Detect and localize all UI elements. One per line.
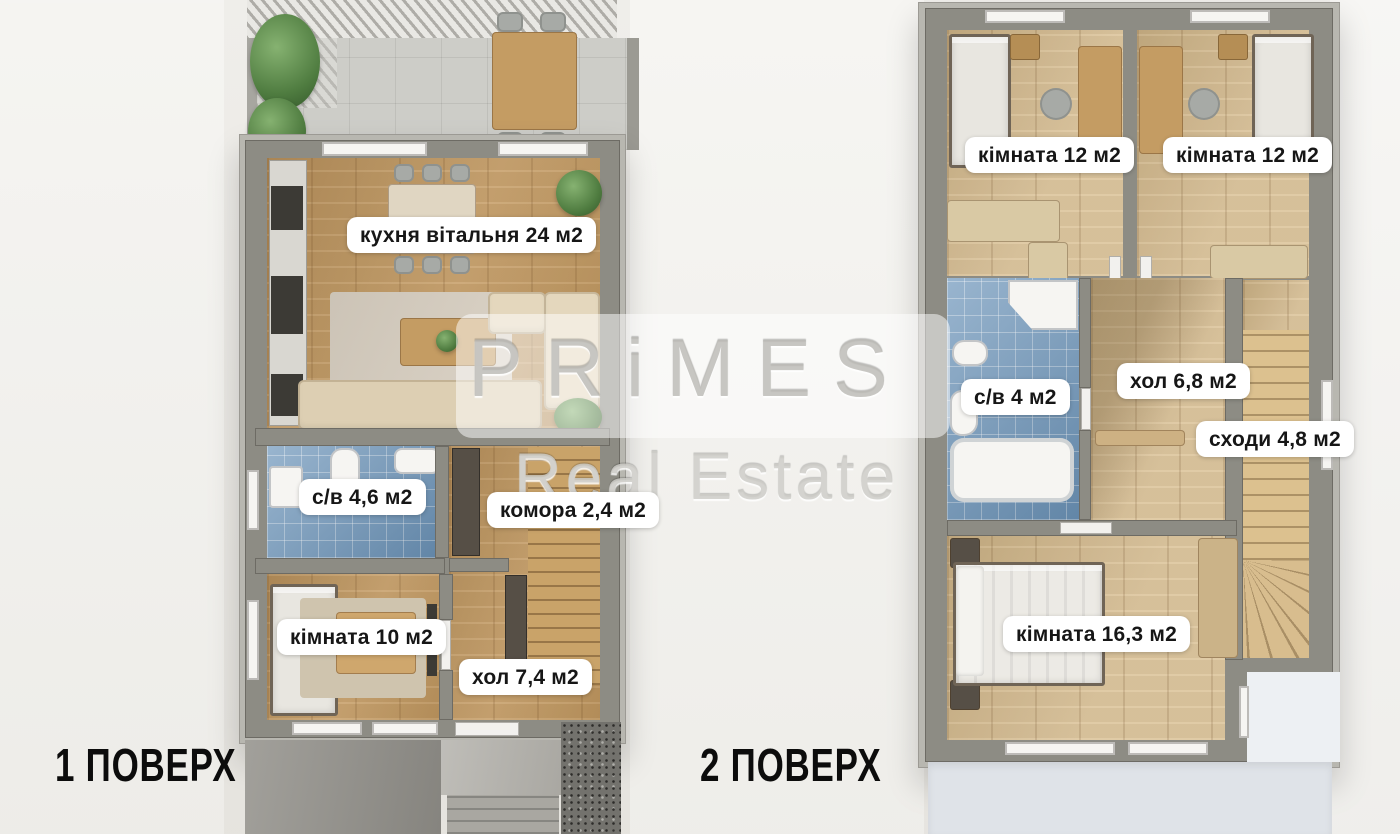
kitchen-cooktop [271,276,303,334]
dining-chair [422,256,442,274]
staircase2-winders [1243,560,1309,658]
room-label-stairs: сходи 4,8 м2 [1196,421,1354,457]
room-label-hall1: хол 7,4 м2 [459,659,592,695]
bedroom3-door [1060,522,1112,534]
bedroom1-door-wall-top [439,574,453,620]
room-label-hall2: хол 6,8 м2 [1117,363,1250,399]
room-label-kitchen-living: кухня вітальня 24 м2 [347,217,596,253]
dining-chair [422,164,442,182]
kitchen-sink-unit [271,186,303,230]
floorplan-image: кухня вітальня 24 м2 с/в 4,6 м2 комора 2… [0,0,1400,834]
bedroom2a-chair [1040,88,1072,120]
bathroom2-sink [952,340,988,366]
bathroom2-wall-bottom [1079,430,1091,520]
room-label-bedroom3: кімната 16,3 м2 [1003,616,1190,652]
bedroom1-wall [255,558,445,574]
terrace-chair [497,12,523,32]
bedroom2b-window [1190,10,1270,23]
lower-roof [928,762,1332,834]
bedroom2b-chair [1188,88,1220,120]
storage-shelf [452,448,480,556]
bedroom2a-wardrobe [947,200,1060,242]
hall2-console [1095,430,1185,446]
gravel-strip [561,722,621,834]
entrance-door [455,722,519,736]
room-label-bedroom2a: кімната 12 м2 [965,137,1134,173]
terrace-door-window [498,142,588,156]
bedroom1-window-bottom2 [372,722,438,735]
terrace-door-window [322,142,427,156]
bedroom1-door-wall-bottom [439,670,453,720]
entrance-porch [441,740,561,795]
dining-chair [450,164,470,182]
dining-chair [450,256,470,274]
room-label-bedroom2b: кімната 12 м2 [1163,137,1332,173]
bedroom2b-nightstand [1218,34,1248,60]
washing-machine [269,466,303,508]
storage-wall [449,558,509,572]
sink [394,448,440,474]
bathroom1-window [247,470,259,530]
bedroom1-window-left [247,600,259,680]
indoor-plant [556,170,602,216]
terrace-dining-table [492,32,577,130]
driveway [245,740,441,834]
watermark-brand: PRiMES [468,322,910,416]
notch-window [1239,686,1249,738]
bedroom2b-dresser [1210,245,1308,279]
floor2-title: 2 ПОВЕРХ [700,738,881,792]
bedroom3-wardrobe [1198,538,1238,658]
bathroom2-wall-top [1079,278,1091,388]
bathtub [950,438,1074,502]
bathroom1-wall [435,446,449,558]
bedroom2a-nightstand [1010,34,1040,60]
room-label-bedroom1: кімната 10 м2 [277,619,446,655]
hall2-shadow [1091,278,1237,520]
bedroom3-window-bottom [1005,742,1115,755]
dining-chair [394,256,414,274]
table-plant [436,330,458,352]
bedroom3-pillows [956,566,984,676]
floor2-roof-notch [1247,672,1340,762]
bedroom3-window-bottom2 [1128,742,1208,755]
terrace-plant [250,14,320,109]
dining-chair [394,164,414,182]
bedroom2a-window [985,10,1065,23]
bedroom1-window-bottom [292,722,362,735]
room-label-bathroom2: с/в 4 м2 [961,379,1070,415]
entrance-steps [447,795,559,834]
floor1-title: 1 ПОВЕРХ [55,738,236,792]
room-label-bathroom1: с/в 4,6 м2 [299,479,426,515]
room-label-storage: комора 2,4 м2 [487,492,659,528]
terrace-chair [540,12,566,32]
bathroom2-door [1081,388,1091,430]
